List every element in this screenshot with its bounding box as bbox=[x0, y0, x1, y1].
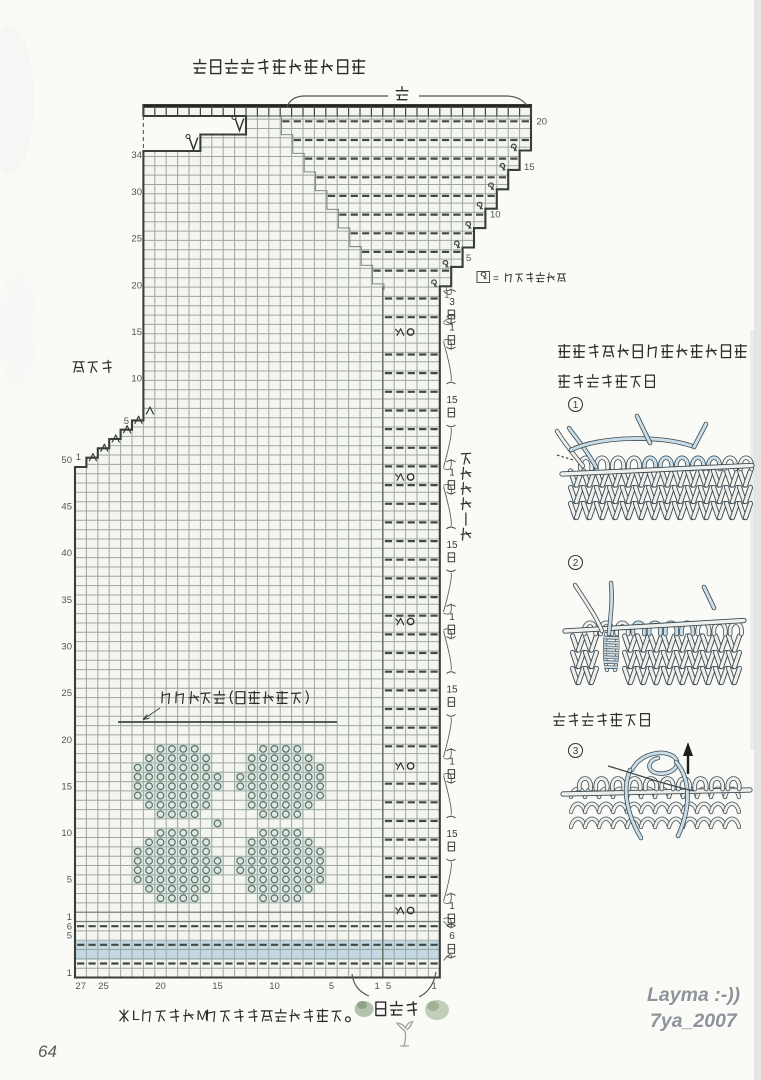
svg-text:15: 15 bbox=[61, 781, 72, 792]
svg-text:20: 20 bbox=[155, 981, 166, 992]
svg-text:45: 45 bbox=[61, 502, 72, 513]
svg-text:25: 25 bbox=[98, 981, 109, 992]
svg-text:3: 3 bbox=[449, 297, 455, 308]
svg-text:5: 5 bbox=[329, 981, 334, 992]
svg-text:Layma :-)): Layma :-)) bbox=[647, 984, 740, 1006]
svg-text:20: 20 bbox=[537, 117, 548, 128]
svg-text:1: 1 bbox=[67, 968, 72, 979]
svg-text:5: 5 bbox=[124, 416, 129, 427]
svg-text:50: 50 bbox=[61, 455, 72, 466]
svg-text:64: 64 bbox=[38, 1042, 57, 1061]
svg-text:15: 15 bbox=[446, 829, 458, 840]
svg-text:30: 30 bbox=[131, 187, 142, 198]
svg-text:15: 15 bbox=[446, 540, 458, 551]
svg-text:1: 1 bbox=[444, 284, 449, 293]
svg-text:15: 15 bbox=[446, 685, 458, 696]
svg-text:1: 1 bbox=[573, 400, 579, 411]
svg-text:34: 34 bbox=[131, 150, 142, 161]
svg-text:20: 20 bbox=[61, 735, 72, 746]
svg-text:15: 15 bbox=[524, 162, 535, 173]
svg-text:10: 10 bbox=[131, 374, 142, 385]
svg-text:1: 1 bbox=[449, 323, 455, 334]
svg-text:15: 15 bbox=[446, 395, 458, 406]
svg-text:1: 1 bbox=[449, 901, 455, 912]
svg-text:25: 25 bbox=[61, 688, 72, 699]
svg-text:30: 30 bbox=[61, 642, 72, 653]
svg-text:2: 2 bbox=[573, 558, 579, 569]
svg-text:27: 27 bbox=[75, 981, 86, 992]
svg-text:1: 1 bbox=[374, 981, 379, 992]
svg-text:3: 3 bbox=[573, 746, 579, 757]
svg-text:1: 1 bbox=[449, 612, 455, 623]
svg-text:7ya_2007: 7ya_2007 bbox=[650, 1010, 738, 1032]
svg-text:15: 15 bbox=[131, 327, 142, 338]
svg-text:M: M bbox=[196, 1008, 208, 1024]
svg-text:5: 5 bbox=[466, 253, 471, 264]
svg-text:20: 20 bbox=[131, 280, 142, 291]
svg-text:L: L bbox=[132, 1008, 140, 1024]
svg-text:6: 6 bbox=[67, 921, 72, 932]
svg-text:5: 5 bbox=[386, 981, 391, 992]
svg-text:1: 1 bbox=[431, 981, 436, 992]
svg-text:40: 40 bbox=[61, 548, 72, 559]
svg-text:1: 1 bbox=[449, 468, 455, 479]
svg-text:1: 1 bbox=[449, 757, 455, 768]
svg-text:10: 10 bbox=[490, 210, 501, 221]
svg-text:35: 35 bbox=[61, 595, 72, 606]
svg-text:10: 10 bbox=[61, 828, 72, 839]
svg-text:1: 1 bbox=[76, 452, 81, 463]
svg-text:25: 25 bbox=[131, 234, 142, 245]
svg-text:15: 15 bbox=[212, 981, 223, 992]
svg-text:=: = bbox=[493, 274, 499, 285]
svg-text:5: 5 bbox=[67, 875, 72, 886]
svg-text:6: 6 bbox=[449, 931, 455, 942]
svg-text:10: 10 bbox=[269, 981, 280, 992]
